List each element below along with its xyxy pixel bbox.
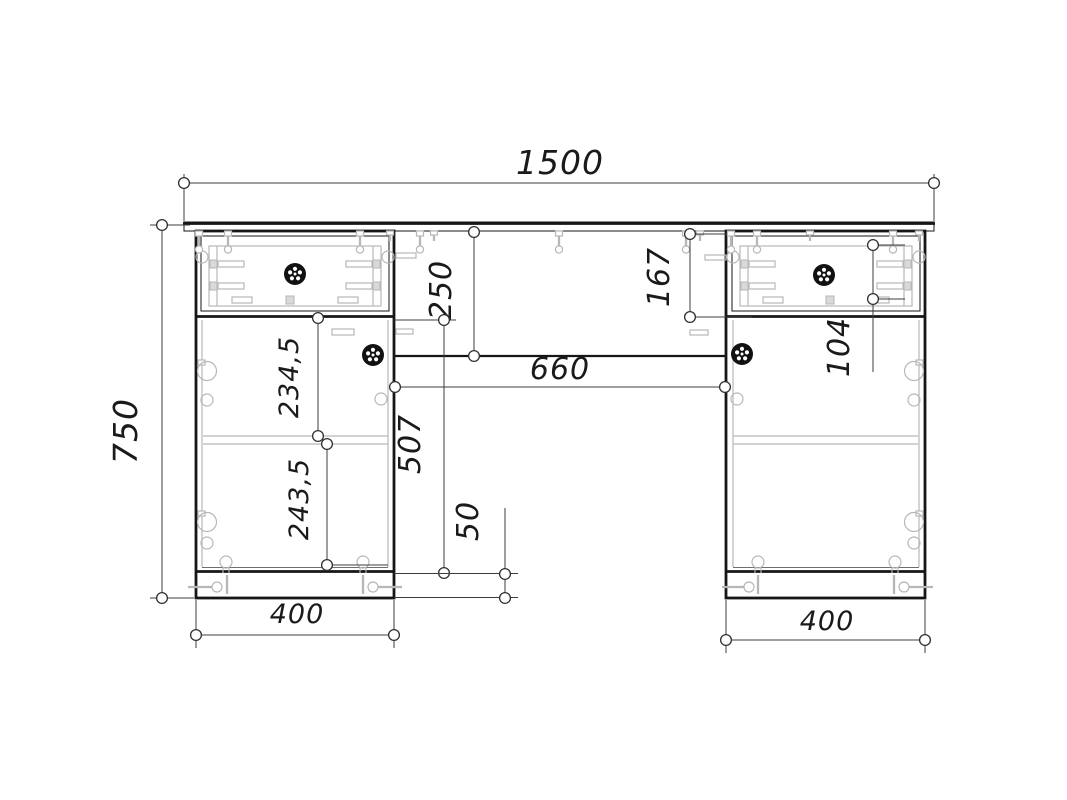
dim-overall-width: 1500	[179, 143, 940, 221]
desk-technical-drawing: 1500 750 250 660 167 104 2	[0, 0, 1067, 800]
left-plinth	[188, 575, 402, 594]
dim-upper-compartment-label: 234,5	[274, 336, 305, 418]
dim-modesty-panel-height-label: 250	[424, 260, 459, 320]
screw-icon	[356, 231, 363, 253]
screw-icon	[753, 231, 760, 253]
right-door-hinge-icon	[905, 362, 924, 381]
dim-overall-height-label: 750	[106, 398, 145, 464]
dim-drawer-front-height-label: 167	[642, 247, 677, 307]
dim-lower-compartment: 243,5	[284, 439, 388, 571]
screw-icon	[555, 231, 562, 253]
dim-left-pedestal-width-label: 400	[270, 599, 325, 630]
right-drawer-knob-icon[interactable]	[813, 264, 835, 286]
screw-icon	[889, 231, 896, 253]
left-door-knob-icon[interactable]	[362, 344, 384, 366]
right-door-hinge-icon	[905, 513, 924, 532]
screw-icon	[224, 231, 231, 253]
screw-icon	[727, 231, 734, 253]
dim-right-pedestal-width-label: 400	[800, 606, 855, 637]
technical-drawing-canvas: 1500 750 250 660 167 104 2	[0, 0, 1067, 800]
dim-plinth-height: 50	[394, 501, 518, 603]
dim-knee-hole-width: 660	[390, 352, 731, 392]
dim-lower-compartment-label: 243,5	[284, 458, 315, 540]
dim-overall-width-label: 1500	[516, 143, 604, 182]
dim-drawer-front-height: 167	[642, 229, 752, 323]
left-door-hinge-icon	[198, 513, 217, 532]
dim-right-pedestal-width: 400	[721, 600, 931, 653]
dim-door-section-height-label: 507	[393, 414, 428, 474]
dim-drawer-box-height: 104	[822, 240, 905, 378]
right-door-knob-icon[interactable]	[731, 343, 753, 365]
right-plinth	[722, 575, 933, 594]
left-door-hinge-icon	[198, 362, 217, 381]
screw-icon	[416, 231, 423, 253]
dim-door-section-height: 507	[393, 315, 456, 579]
dim-knee-hole-width-label: 660	[530, 352, 590, 387]
screw-icon	[431, 231, 438, 241]
dim-modesty-panel-height: 250	[424, 227, 479, 362]
dim-left-pedestal-width: 400	[191, 599, 400, 648]
dim-overall-height: 750	[106, 220, 194, 604]
dim-plinth-height-label: 50	[451, 501, 486, 541]
dim-drawer-box-height-label: 104	[822, 317, 857, 377]
dim-upper-compartment: 234,5	[274, 313, 323, 442]
right-pedestal	[722, 231, 933, 598]
screw-icon	[697, 231, 704, 241]
left-drawer-knob-icon[interactable]	[284, 263, 306, 285]
